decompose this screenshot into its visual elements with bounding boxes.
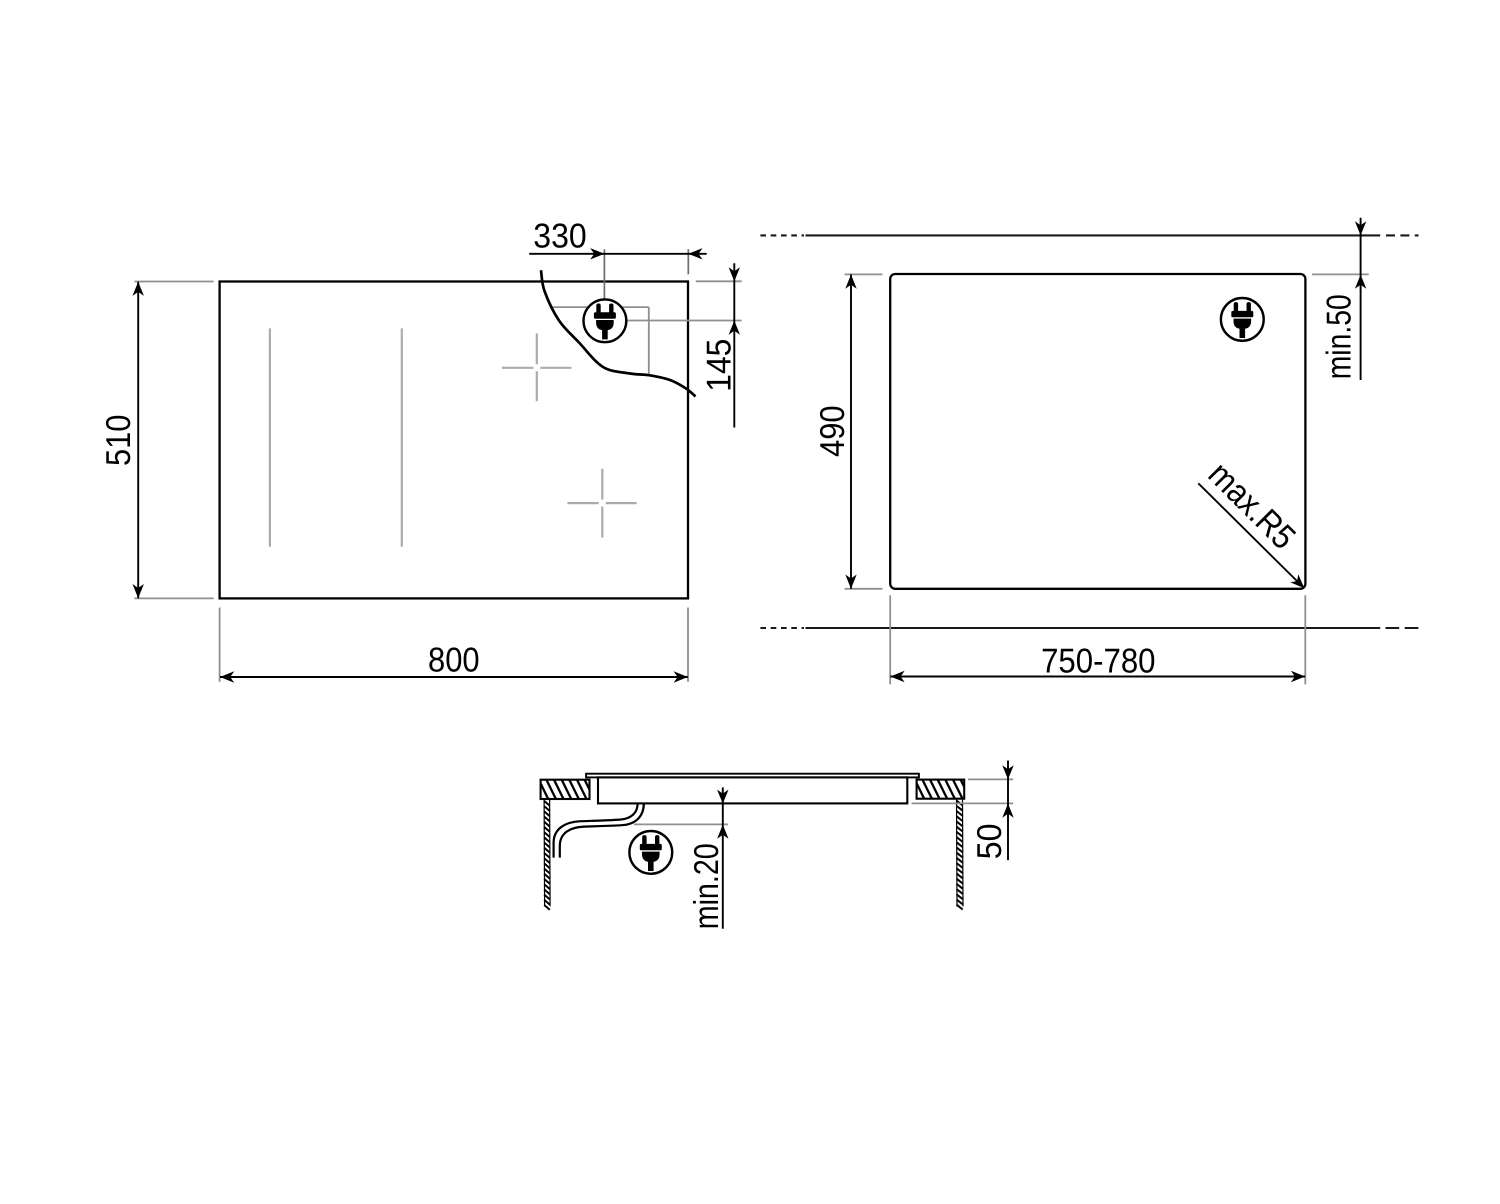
svg-text:min.50: min.50 [1321,294,1359,379]
svg-text:330: 330 [533,218,586,256]
svg-text:50: 50 [971,824,1009,860]
svg-text:750-780: 750-780 [1041,643,1155,681]
svg-text:145: 145 [700,339,738,392]
svg-text:800: 800 [428,642,480,680]
svg-text:510: 510 [100,415,138,467]
svg-text:490: 490 [814,405,852,457]
svg-text:min.20: min.20 [688,843,726,929]
